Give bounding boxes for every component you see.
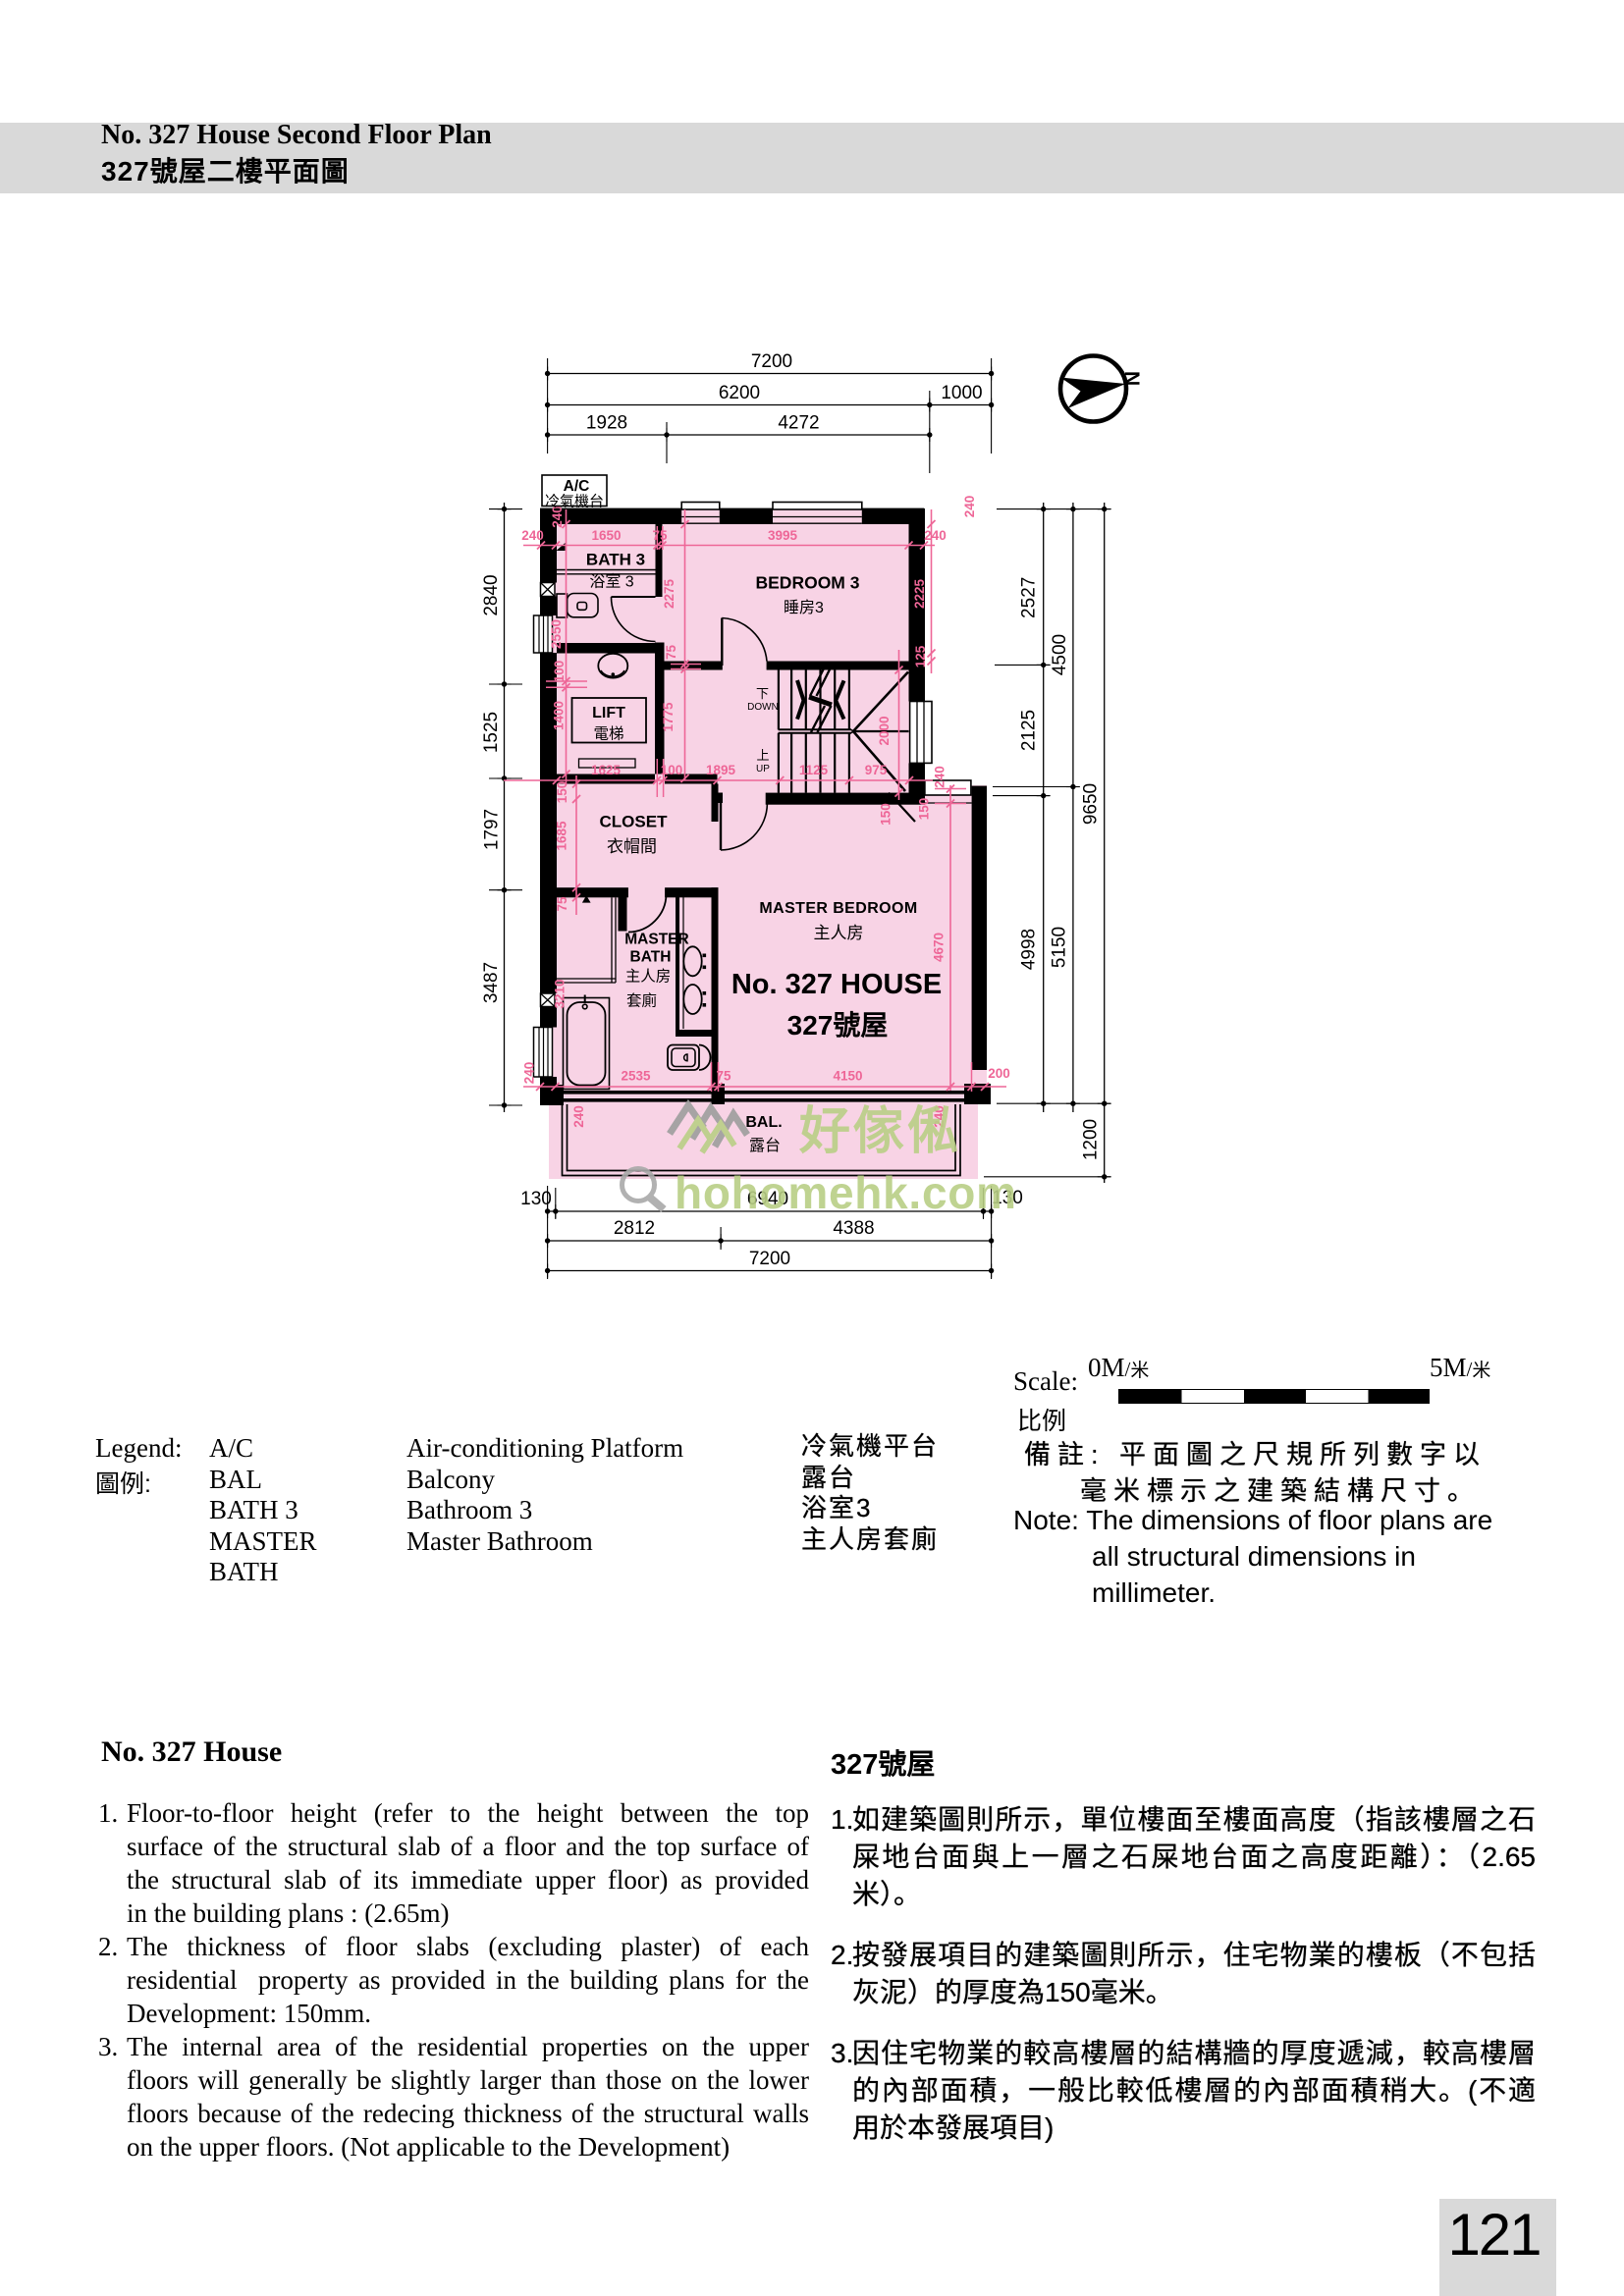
svg-text:125: 125: [913, 645, 928, 667]
svg-text:200: 200: [988, 1066, 1010, 1081]
svg-text:2812: 2812: [614, 1218, 655, 1239]
svg-text:4500: 4500: [1050, 634, 1070, 675]
svg-text:主人房: 主人房: [625, 968, 672, 986]
svg-text:2840: 2840: [481, 574, 502, 615]
svg-text:2125: 2125: [1019, 710, 1040, 751]
svg-text:BAL.: BAL.: [745, 1114, 782, 1131]
svg-text:240: 240: [571, 1105, 586, 1128]
svg-text:5150: 5150: [1050, 927, 1070, 968]
svg-text:2000: 2000: [877, 716, 892, 745]
svg-text:75: 75: [664, 645, 678, 661]
svg-text:3210: 3210: [553, 979, 568, 1008]
svg-text:240: 240: [522, 1062, 537, 1085]
svg-text:BATH: BATH: [630, 949, 672, 966]
svg-text:2225: 2225: [912, 578, 927, 609]
svg-text:1000: 1000: [941, 383, 982, 403]
svg-text:主人房: 主人房: [814, 924, 864, 942]
svg-text:130: 130: [520, 1189, 552, 1209]
svg-text:露台: 露台: [749, 1137, 781, 1154]
svg-text:150: 150: [555, 781, 569, 804]
svg-text:240: 240: [933, 766, 947, 788]
svg-text:浴室 3: 浴室 3: [589, 573, 633, 591]
svg-text:套廁: 套廁: [626, 991, 657, 1010]
svg-text:1928: 1928: [586, 413, 627, 434]
svg-text:1895: 1895: [706, 763, 736, 777]
svg-text:LIFT: LIFT: [592, 705, 625, 721]
svg-text:75: 75: [716, 1069, 731, 1084]
svg-text:CLOSET: CLOSET: [600, 813, 669, 831]
svg-text:3487: 3487: [481, 962, 502, 1003]
svg-text:240: 240: [521, 528, 544, 543]
svg-text:3995: 3995: [768, 528, 798, 543]
svg-text:UP: UP: [756, 764, 770, 774]
svg-text:1797: 1797: [482, 809, 503, 850]
svg-text:2535: 2535: [621, 1069, 651, 1084]
svg-text:7200: 7200: [749, 1249, 790, 1269]
svg-text:No. 327 HOUSE: No. 327 HOUSE: [731, 969, 942, 1000]
svg-text:4998: 4998: [1019, 929, 1040, 970]
svg-text:1200: 1200: [1081, 1119, 1102, 1160]
svg-text:A/C: A/C: [564, 478, 590, 495]
svg-text:150: 150: [879, 803, 893, 826]
svg-text:DOWN: DOWN: [747, 702, 779, 713]
svg-text:100: 100: [661, 763, 683, 777]
svg-text:240: 240: [924, 528, 947, 543]
svg-text:75: 75: [652, 528, 668, 543]
svg-text:1400: 1400: [552, 701, 567, 730]
svg-text:1525: 1525: [481, 712, 502, 753]
svg-text:1685: 1685: [555, 821, 569, 851]
svg-text:衣帽間: 衣帽間: [607, 837, 657, 856]
svg-text:4670: 4670: [932, 933, 947, 962]
svg-text:4272: 4272: [778, 413, 819, 434]
svg-text:2527: 2527: [1019, 577, 1040, 618]
svg-text:240: 240: [962, 496, 977, 518]
svg-text:2550: 2550: [549, 619, 564, 649]
svg-text:150: 150: [917, 798, 932, 821]
svg-text:上: 上: [756, 748, 769, 763]
svg-text:1650: 1650: [591, 528, 621, 543]
svg-text:MASTER BEDROOM: MASTER BEDROOM: [759, 900, 917, 917]
svg-text:BEDROOM 3: BEDROOM 3: [756, 573, 860, 593]
svg-text:電梯: 電梯: [593, 725, 623, 743]
svg-text:4150: 4150: [833, 1069, 862, 1084]
svg-text:327號屋: 327號屋: [787, 1010, 889, 1041]
svg-text:N: N: [1120, 371, 1143, 386]
svg-text:2275: 2275: [662, 578, 677, 609]
svg-text:975: 975: [865, 763, 888, 777]
svg-text:9650: 9650: [1081, 783, 1102, 825]
svg-text:冷氣機台: 冷氣機台: [545, 494, 604, 510]
svg-text:BATH 3: BATH 3: [586, 551, 645, 569]
svg-text:MASTER: MASTER: [624, 932, 688, 948]
svg-text:hohomehk.com: hohomehk.com: [675, 1167, 1016, 1218]
svg-text:好傢俬: 好傢俬: [798, 1103, 958, 1160]
svg-text:下: 下: [756, 686, 769, 701]
svg-text:1775: 1775: [661, 702, 676, 732]
svg-text:4388: 4388: [833, 1218, 874, 1239]
svg-text:1625: 1625: [591, 763, 622, 777]
svg-text:1125: 1125: [799, 763, 829, 777]
svg-text:75: 75: [555, 896, 569, 912]
svg-text:7200: 7200: [751, 351, 792, 372]
svg-text:6200: 6200: [719, 383, 760, 403]
svg-text:睡房3: 睡房3: [784, 599, 824, 616]
svg-text:100: 100: [552, 661, 567, 683]
